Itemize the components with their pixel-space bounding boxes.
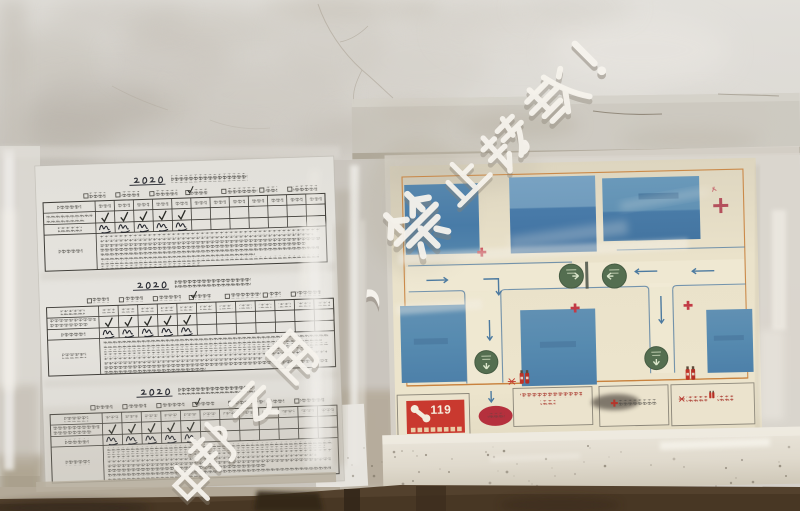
svg-text:119: 119 — [430, 402, 451, 416]
